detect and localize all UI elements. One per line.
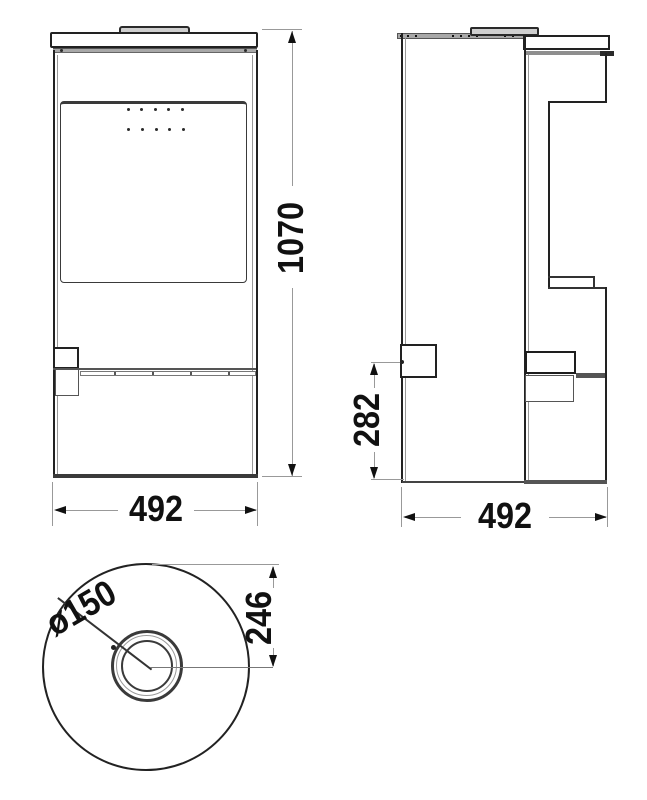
trim-tick bbox=[152, 372, 154, 375]
leader-arrow-icon bbox=[111, 645, 116, 650]
arrow-left-icon bbox=[403, 513, 415, 521]
door-latch-upper bbox=[53, 347, 79, 369]
side-under-band-tip bbox=[600, 51, 614, 56]
trim-tick bbox=[190, 372, 192, 375]
door-latch-lower bbox=[55, 369, 79, 396]
side-front-top-plate bbox=[523, 35, 610, 50]
side-latch-bar bbox=[576, 373, 605, 378]
arrow-down-icon bbox=[288, 464, 296, 476]
front-body-left-inner bbox=[57, 55, 58, 475]
rail-bolt-icon bbox=[60, 49, 63, 52]
side-depth-dimension-label: 492 bbox=[478, 498, 532, 534]
side-latch-lower bbox=[525, 375, 574, 402]
door-mid-face bbox=[605, 287, 607, 378]
dimension-drawing: 1070 492 bbox=[0, 0, 647, 800]
side-latch-upper bbox=[525, 351, 576, 374]
height-dimension-label: 1070 bbox=[273, 202, 309, 274]
arrow-right-icon bbox=[595, 513, 607, 521]
door-upper-face bbox=[605, 53, 607, 103]
front-base-line bbox=[53, 474, 258, 478]
side-back-inner bbox=[405, 38, 406, 481]
arrow-up-icon bbox=[269, 566, 277, 578]
center-line bbox=[150, 667, 273, 668]
side-back-edge bbox=[401, 33, 403, 483]
front-body-right-edge bbox=[256, 50, 258, 477]
rear-outlet-box bbox=[400, 344, 437, 378]
front-top-rail bbox=[53, 48, 257, 53]
leader-dot-icon bbox=[400, 360, 404, 364]
trim-tick bbox=[228, 372, 230, 375]
glass-door-panel bbox=[60, 101, 247, 283]
door-step-bottom bbox=[548, 287, 607, 289]
rail-bolt-icon bbox=[244, 49, 247, 52]
front-width-dimension-label: 492 bbox=[129, 491, 183, 527]
front-body-right-inner bbox=[252, 55, 253, 475]
arrow-up-icon bbox=[288, 31, 296, 43]
side-base-left bbox=[402, 481, 524, 483]
side-body-front-inner bbox=[528, 55, 529, 481]
door-step-top bbox=[548, 101, 607, 103]
side-base-right bbox=[524, 480, 607, 484]
arrow-up-icon bbox=[370, 363, 378, 375]
side-body-front-edge bbox=[524, 35, 526, 483]
flue-offset-label: 246 bbox=[241, 591, 277, 645]
door-recess-face bbox=[548, 101, 550, 289]
door-split-line bbox=[53, 368, 256, 370]
screw-icon bbox=[415, 35, 417, 37]
screw-icon bbox=[407, 35, 409, 37]
arrow-down-icon bbox=[370, 467, 378, 479]
front-top-plate bbox=[50, 32, 258, 48]
front-body-left-edge bbox=[53, 50, 55, 477]
arrow-right-icon bbox=[245, 506, 257, 514]
arrow-down-icon bbox=[269, 655, 277, 667]
arrow-left-icon bbox=[54, 506, 66, 514]
rear-outlet-height-label: 282 bbox=[349, 393, 385, 447]
screw-icon bbox=[460, 35, 462, 37]
screw-icon bbox=[452, 35, 454, 37]
lower-trim-strip bbox=[80, 371, 256, 376]
trim-tick bbox=[114, 372, 116, 375]
door-ledge-top bbox=[548, 276, 595, 278]
door-lower-face bbox=[605, 377, 607, 482]
